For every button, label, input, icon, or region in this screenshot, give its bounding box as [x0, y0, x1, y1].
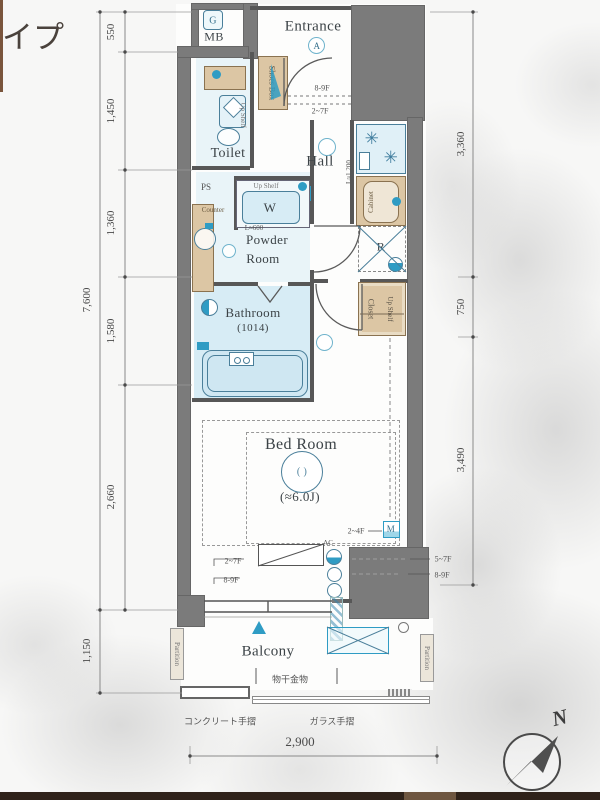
powder-room-label-2: Room — [246, 251, 279, 267]
bedroom-size-label: (≈6.0J) — [280, 489, 320, 505]
dim-3360: 3,360 — [455, 132, 467, 157]
partition-left-label: Partition — [173, 642, 181, 666]
window-bench — [258, 544, 324, 566]
window-floors-2-7-label: 2~7F — [225, 557, 242, 566]
refrigerator-label: R — [377, 240, 385, 255]
dim-1450: 1,450 — [105, 99, 117, 124]
mb-label: MB — [204, 30, 223, 45]
toilet-shelf-label: Up Shelf — [239, 102, 247, 127]
partition-right-label: Partition — [423, 646, 431, 670]
compass-north-label: N — [549, 704, 570, 732]
basin-faucet-icon — [205, 223, 213, 229]
counter-label: Counter — [202, 206, 225, 214]
washer-shelf-label: Up Shelf — [253, 182, 278, 190]
closet — [358, 282, 406, 336]
page-bottom-bar — [0, 792, 600, 800]
toilet-seat — [217, 128, 240, 146]
powder-light — [222, 244, 236, 258]
washer-width-label: L≈600 — [245, 224, 264, 232]
wall-toilet-entrance — [250, 52, 254, 168]
balcony-drain-icon — [398, 622, 409, 633]
wall-right — [408, 118, 422, 550]
handrail-hatch — [388, 689, 412, 696]
wall-bath-right — [310, 284, 314, 402]
balcony-equipment-box — [327, 627, 389, 654]
shower-head-icon — [201, 299, 218, 316]
wall-powder-hall — [310, 120, 314, 224]
concrete-handrail — [180, 686, 250, 699]
dim-750: 750 — [455, 299, 467, 316]
entrance-light-mark: A — [314, 41, 321, 51]
laundry-fitting-label: 物干金物 — [272, 673, 308, 686]
wall-bath-bottom — [192, 398, 314, 402]
floors-2-4-label: 2~4F — [348, 527, 365, 536]
dim-3490: 3,490 — [455, 448, 467, 473]
wall-bottom-left-block — [178, 596, 204, 626]
stove-burner-icon-2: ✳ — [384, 148, 399, 168]
balcony-label: Balcony — [242, 644, 295, 661]
concrete-handrail-label: コンクリート手摺 — [184, 715, 256, 728]
tub-knob-icon-2 — [243, 357, 250, 364]
dim-7600-total: 7,600 — [81, 288, 93, 313]
bathroom-size-label: (1014) — [237, 322, 269, 334]
powder-room-label-1: Powder — [246, 232, 288, 248]
ac-label: AC — [323, 539, 333, 547]
wall-toilet-bottom — [192, 166, 250, 170]
gas-meter-symbol: G — [209, 16, 217, 27]
stove-burner-icon: ✳ — [365, 129, 380, 149]
page-bottom-bar-accent — [404, 792, 456, 800]
tub-faucet-deck — [229, 352, 254, 366]
hall-label: Hall — [306, 154, 333, 171]
stove-grill — [359, 152, 370, 170]
entrance-step-lower-label: 2~7F — [312, 107, 329, 116]
closet-label: Closet — [367, 299, 376, 319]
wall-mb-top — [192, 4, 250, 9]
bedroom-light-mark: ( ) — [297, 467, 307, 478]
meter-symbol: M — [387, 524, 395, 534]
vent-sleeve-icon — [327, 567, 342, 582]
cabinet-label: Cabinet — [367, 191, 375, 213]
refrigerator-outlet-icon — [388, 257, 403, 272]
floors-8-9-label: 8-9F — [434, 571, 449, 580]
ac-sleeve-icon — [326, 549, 342, 565]
glass-handrail-label: ガラス手摺 — [310, 715, 355, 728]
dim-2660: 2,660 — [105, 485, 117, 510]
floors-5-7-label: 5~7F — [435, 555, 452, 564]
dim-1580: 1,580 — [105, 319, 117, 344]
wall-entrance-top — [250, 6, 354, 10]
shoes-box-label: Shoes Box — [268, 66, 277, 100]
washer-tap-icon — [298, 182, 307, 191]
pipe-space-label: PS — [201, 182, 211, 192]
toilet-label: Toilet — [211, 146, 246, 162]
bath-faucet-icon — [197, 342, 209, 350]
vent-sleeve-icon-2 — [327, 583, 342, 598]
entrance-label: Entrance — [285, 19, 342, 36]
dim-1150-balcony: 1,150 — [81, 639, 93, 664]
glass-handrail — [252, 696, 430, 704]
compass-icon — [504, 734, 560, 790]
wall-bedroom-door-left — [312, 279, 328, 283]
dim-2900-width: 2,900 — [285, 734, 314, 750]
washbasin — [194, 228, 216, 250]
hall-light-2 — [316, 334, 333, 351]
wall-mass-top-right — [352, 6, 424, 120]
plan-type-title: イプ — [2, 12, 64, 57]
tub-knob-icon — [234, 357, 241, 364]
dim-550: 550 — [105, 24, 117, 41]
toilet-faucet-icon — [212, 70, 221, 79]
kitchen-length-label: L≈1,200 — [345, 160, 353, 184]
entrance-step-upper-label: 8-9F — [314, 84, 329, 93]
wall-mb-bottom — [178, 47, 248, 57]
toilet-tank — [204, 66, 246, 90]
bathroom-label: Bathroom — [225, 305, 280, 321]
hall-light-1 — [318, 138, 336, 156]
bathtub-inner — [207, 355, 303, 392]
window-floors-8-9-label: 8-9F — [223, 576, 238, 585]
dim-1360: 1,360 — [105, 211, 117, 236]
glass-handrail-line — [252, 699, 430, 700]
closet-shelf-label: Up Shelf — [386, 296, 394, 321]
wall-mass-bottom-right — [350, 548, 428, 618]
sink-faucet-icon — [392, 197, 401, 206]
washer-symbol: W — [264, 200, 277, 216]
wall-left — [178, 50, 190, 614]
floorplan-screenshot: イプ G MB Entrance A Shoes Box 8-9F 2~7F U… — [0, 0, 600, 800]
